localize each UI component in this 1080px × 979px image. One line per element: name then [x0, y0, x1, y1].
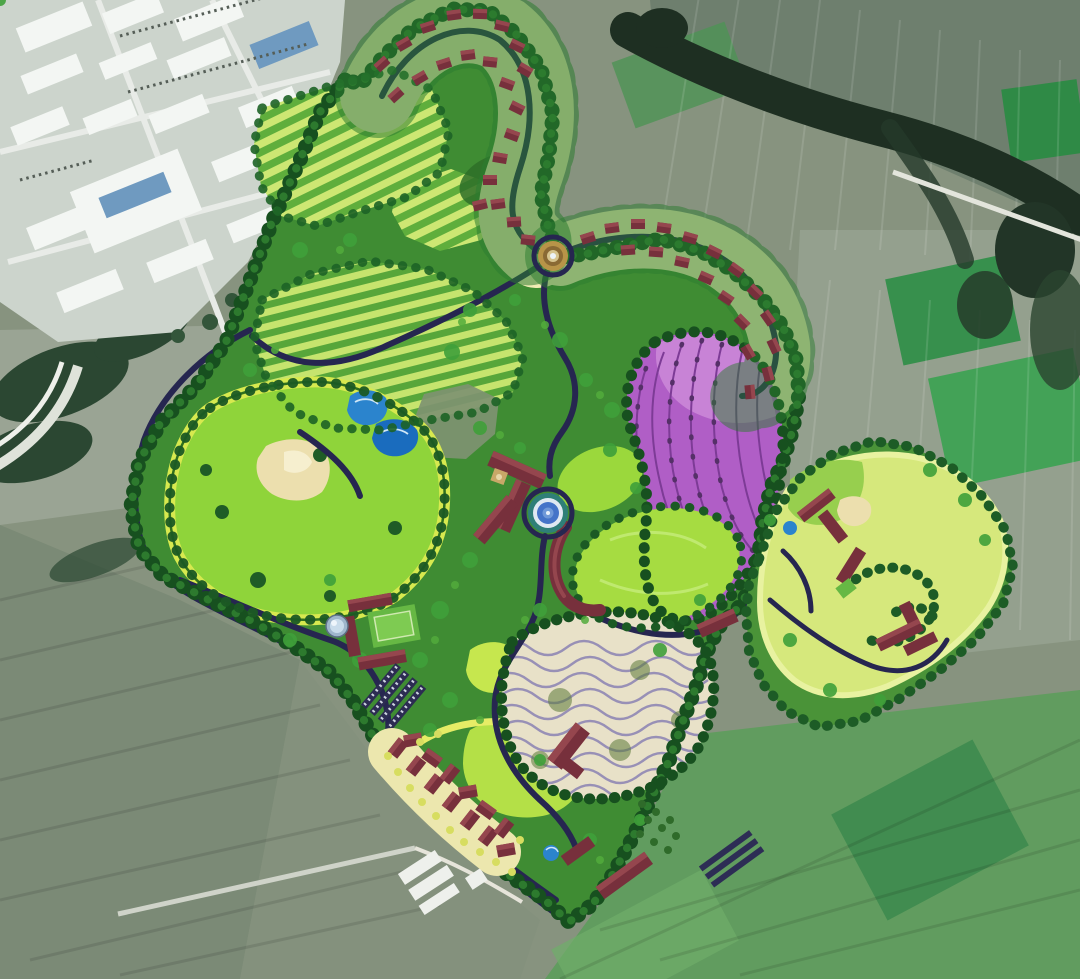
entry-roundabout — [534, 237, 572, 275]
masterplan-svg — [0, 0, 1080, 979]
central-plaza-fountain — [524, 489, 572, 537]
east-pond — [783, 521, 797, 535]
aerial-masterplan-image — [0, 0, 1080, 979]
